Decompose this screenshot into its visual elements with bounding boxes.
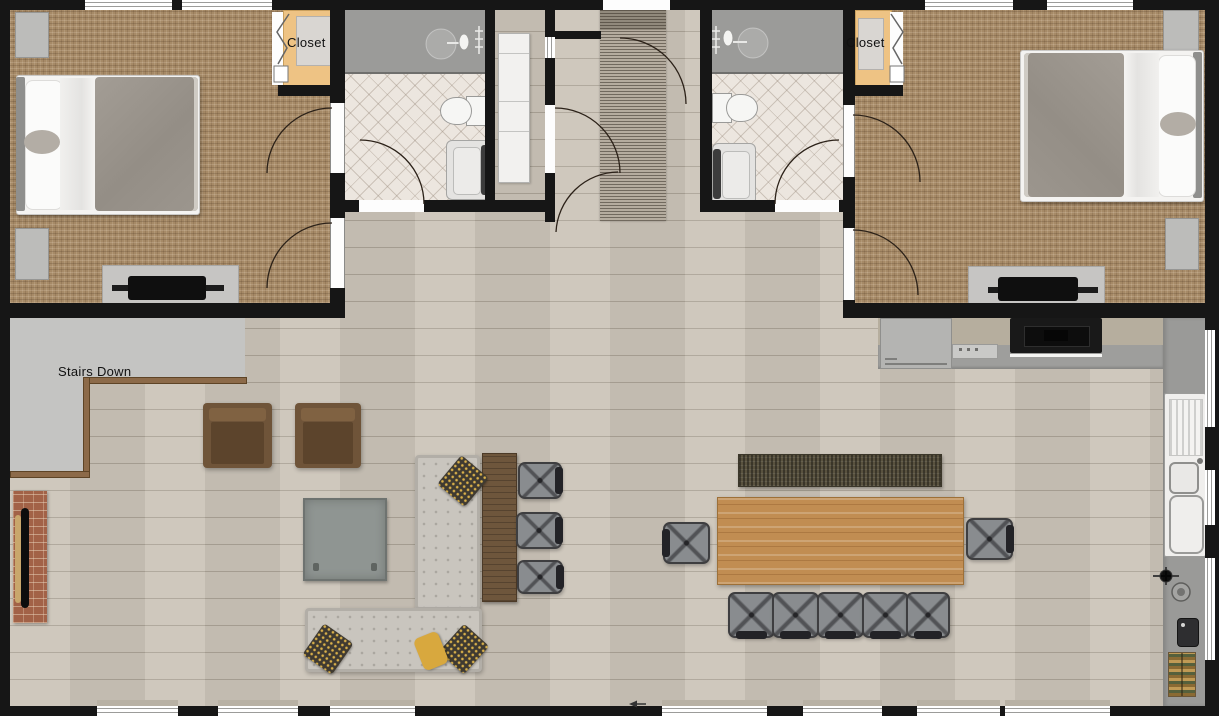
closet-left-label: Closet [287, 35, 326, 50]
nightstand [1165, 218, 1199, 270]
bathtub-rim-shadow [713, 149, 721, 199]
dining-chair [728, 592, 775, 638]
dining-chair [663, 522, 710, 564]
fireplace-firebox [21, 508, 29, 608]
window [97, 706, 178, 716]
armchair [295, 403, 361, 468]
nightstand [15, 12, 49, 58]
floor-plan: Closet Closet Stairs Down [0, 0, 1219, 720]
window [218, 706, 298, 716]
wall-foyer-right [700, 10, 712, 212]
bathroom-right-shower [712, 10, 843, 74]
window [1205, 330, 1215, 427]
stairs-down-label: Stairs Down [58, 364, 131, 379]
window [803, 706, 882, 716]
door-opening [775, 200, 839, 212]
bed-right [1020, 50, 1202, 200]
toilet-bowl [440, 97, 472, 125]
pass-through-window [545, 37, 555, 58]
door-opening [330, 218, 345, 288]
dining-table [717, 497, 964, 585]
cooktop-front-trim [1010, 354, 1102, 357]
tv [998, 277, 1078, 301]
bar-stool [516, 512, 562, 549]
dining-bench [738, 454, 942, 487]
bed-sheet [1123, 53, 1159, 197]
wall-foyer-left-b [545, 58, 555, 105]
wall-bath-left [485, 10, 495, 212]
coffee-machine [1177, 618, 1199, 647]
wall-bath-right-bottom-a [712, 200, 775, 212]
dining-chair [906, 592, 950, 638]
wall-entry-stub [552, 31, 601, 39]
wall-closet-left-bottom [278, 85, 345, 96]
bar-stool [517, 560, 563, 594]
dining-chair [966, 518, 1013, 560]
door-opening [843, 105, 855, 177]
blanket [1024, 53, 1124, 197]
sink-basin [1169, 495, 1204, 554]
window [1205, 470, 1215, 525]
wall-foyer-left-c [545, 173, 555, 222]
kitchen-sink-unit [1164, 393, 1206, 557]
wall-bedroom-left-bottom [10, 303, 345, 318]
nightstand [15, 228, 49, 280]
bathroom-left-shower [345, 10, 485, 74]
bar-counter [482, 453, 517, 602]
window [917, 706, 1000, 716]
coffee-table [303, 498, 387, 581]
closet-right-label: Closet [846, 35, 885, 50]
dishwasher [880, 318, 952, 369]
wall-bath-left-bottom-a [345, 200, 359, 212]
tv [128, 276, 206, 300]
bar-stool [518, 462, 562, 499]
bathtub [446, 140, 490, 200]
window [182, 0, 272, 10]
linen-cabinet [498, 33, 530, 183]
stairwell-area-lower [10, 318, 83, 474]
window [330, 706, 415, 716]
bed-sheet [60, 78, 96, 210]
door-opening [359, 200, 424, 212]
closet-bifold-opening [890, 12, 903, 85]
foyer-doormat [600, 8, 666, 30]
faucet [1197, 458, 1203, 464]
foyer-runner-rug [600, 8, 666, 221]
door-opening [545, 105, 555, 173]
blanket [95, 77, 198, 211]
nightstand [1163, 10, 1199, 52]
wall-bath-right-bottom-b [839, 200, 855, 212]
window [1047, 0, 1133, 10]
entry-door-opening [603, 0, 670, 10]
accent-pillow [1160, 112, 1196, 136]
stair-railing-bottom [10, 471, 90, 478]
window [85, 0, 172, 10]
closet-bifold-opening [272, 12, 283, 85]
bed-left [16, 75, 198, 213]
stair-railing-side [83, 377, 90, 478]
door-opening [843, 228, 855, 300]
wall-bedroom-right-bottom [855, 303, 1205, 318]
window [1005, 706, 1110, 716]
oven-handle [952, 344, 998, 359]
accent-pillow [24, 130, 60, 154]
window [925, 0, 1013, 10]
wall-closet-right-bottom [843, 85, 903, 96]
armchair [203, 403, 272, 468]
wall-bath-left-bottom-b [424, 200, 545, 212]
toilet-bowl [726, 94, 758, 122]
bathtub [712, 143, 756, 205]
door-opening [330, 103, 345, 173]
sink-small [1169, 462, 1199, 494]
cooktop [1010, 318, 1102, 353]
window [662, 706, 767, 716]
window [1205, 558, 1215, 660]
dining-chair [862, 592, 909, 638]
dining-chair [772, 592, 819, 638]
wall-left [0, 0, 10, 716]
dining-chair [817, 592, 864, 638]
drainboard [1169, 399, 1203, 456]
spice-rack [1168, 652, 1196, 697]
